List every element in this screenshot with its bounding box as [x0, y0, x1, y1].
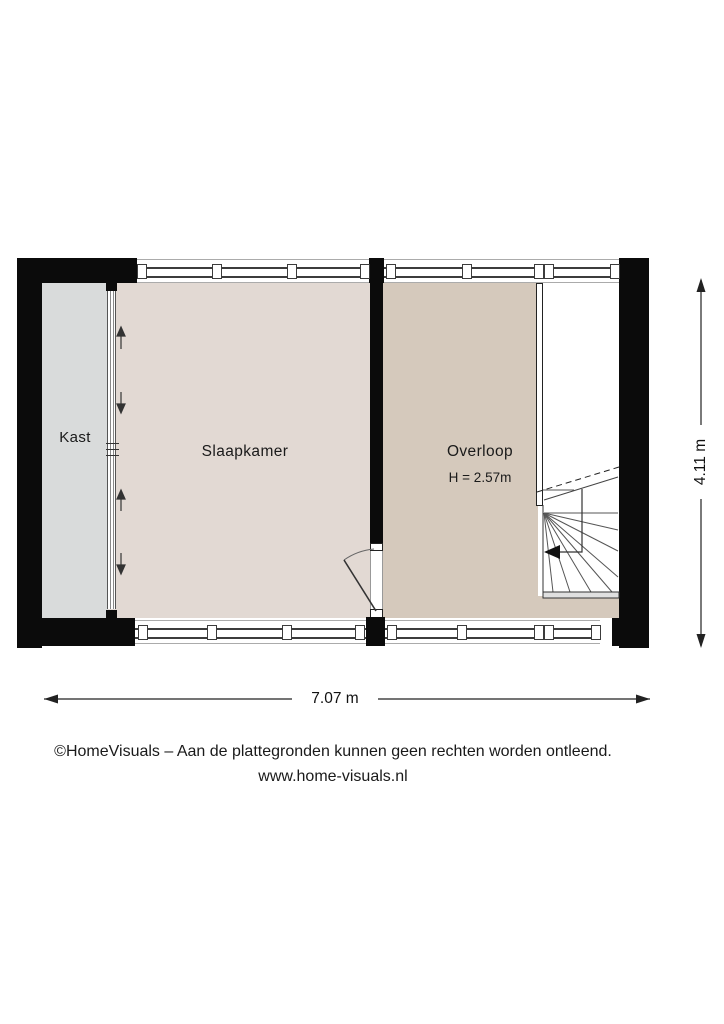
wall-bottom-right	[612, 618, 649, 646]
track-tick	[106, 455, 119, 456]
room-label-overloop: Overloop	[400, 443, 560, 461]
window-top-right	[384, 259, 619, 283]
window-mullion	[544, 625, 554, 640]
track-anchor-bottom	[106, 610, 117, 618]
window-mullion	[386, 264, 396, 279]
window-glazing	[135, 628, 366, 639]
room-overloop-floor-under-stairs	[538, 596, 619, 618]
track-line	[113, 283, 114, 609]
stairwell-void	[538, 283, 619, 596]
window-mullion	[591, 625, 601, 640]
wall-left	[17, 258, 42, 648]
window-mullion	[360, 264, 370, 279]
ceiling-height-label: H = 2.57m	[400, 470, 560, 486]
window-mullion	[287, 264, 297, 279]
window-mullion	[212, 264, 222, 279]
height-dimension-label: 4.11 m	[673, 425, 724, 499]
window-sill	[137, 259, 369, 260]
window-mullion	[610, 264, 620, 279]
window-sill	[384, 282, 619, 283]
window-mullion	[462, 264, 472, 279]
window-glazing	[384, 267, 619, 278]
window-mullion	[387, 625, 397, 640]
footer-url: www.home-visuals.nl	[0, 764, 666, 789]
window-mullion	[137, 264, 147, 279]
window-mullion	[207, 625, 217, 640]
window-bottom-left	[135, 620, 366, 644]
window-mullion	[355, 625, 365, 640]
wall-corner-top-left	[17, 258, 137, 283]
room-label-slaapkamer: Slaapkamer	[145, 443, 345, 461]
window-glazing	[137, 267, 369, 278]
footer-copyright: ©HomeVisuals – Aan de plattegronden kunn…	[0, 739, 666, 764]
wall-pier-bottom-middle	[366, 617, 385, 646]
track-anchor-top	[106, 283, 117, 291]
window-mullion	[534, 264, 544, 279]
window-mullion	[544, 264, 554, 279]
window-top-left	[137, 259, 369, 283]
door-jamb-top	[370, 543, 383, 551]
wall-right	[619, 258, 649, 648]
window-mullion	[457, 625, 467, 640]
room-label-kast: Kast	[42, 429, 108, 447]
floorplan-canvas: Kast Slaapkamer Overloop H = 2.57m 7.07 …	[0, 0, 724, 1024]
window-sill	[385, 620, 600, 621]
track-tick	[106, 449, 119, 450]
window-mullion	[138, 625, 148, 640]
window-mullion	[534, 625, 544, 640]
window-sill	[384, 259, 619, 260]
window-mullion	[282, 625, 292, 640]
window-sill	[135, 643, 366, 644]
sliding-door-track	[107, 283, 116, 609]
window-sill	[135, 620, 366, 621]
track-line	[110, 283, 111, 609]
wall-pier-top-middle	[369, 258, 384, 283]
window-sill	[137, 282, 369, 283]
door-opening	[370, 551, 383, 609]
room-kast-floor	[42, 283, 108, 618]
wall-partition-middle	[370, 283, 383, 543]
width-dimension-label: 7.07 m	[292, 689, 378, 709]
window-glazing	[385, 628, 600, 639]
wall-bottom-left	[17, 618, 135, 646]
window-bottom-right	[385, 620, 600, 644]
window-sill	[385, 643, 600, 644]
